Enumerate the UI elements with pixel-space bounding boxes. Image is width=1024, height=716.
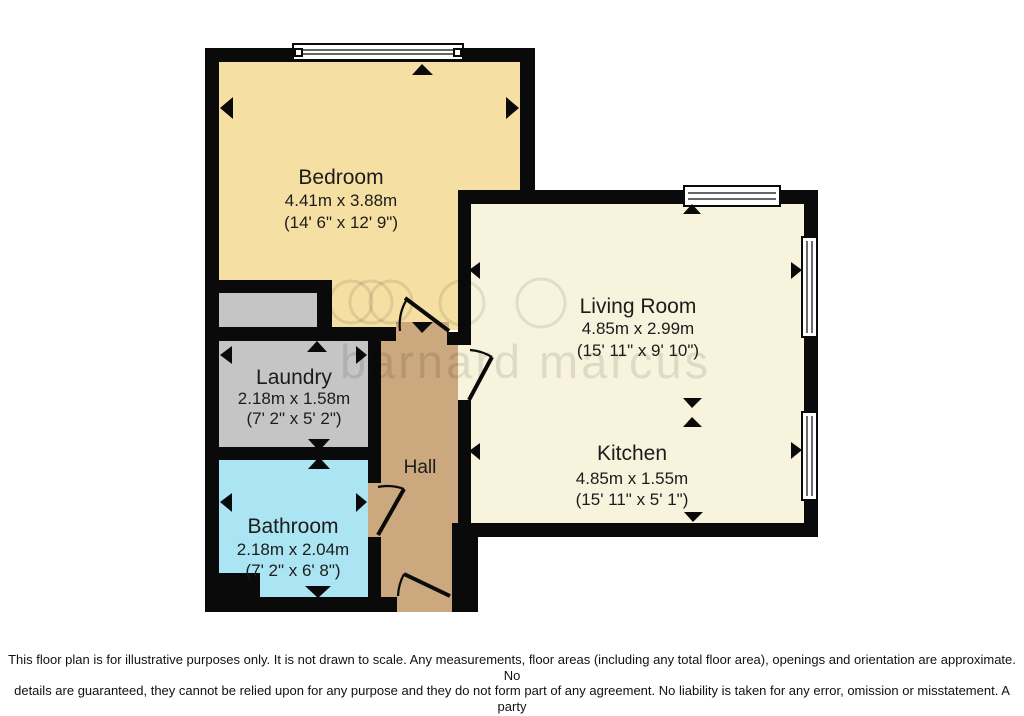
closet-space [219, 293, 317, 327]
hall-label: Hall [404, 457, 437, 478]
kitchen-metric: 4.85m x 1.55m [576, 469, 688, 488]
kitchen-label: Kitchen [597, 442, 667, 465]
livingroom-top-window [684, 186, 780, 206]
bathroom-metric: 2.18m x 2.04m [237, 540, 349, 559]
bathroom-label: Bathroom [247, 515, 338, 538]
floorplan-page: barnard marcus Bedroom 4.41m x 3.88m (14… [0, 0, 1024, 716]
bedroom-label: Bedroom [298, 166, 383, 189]
bathroom-imperial: (7' 2" x 6' 8") [245, 561, 340, 580]
bedroom-imperial: (14' 6" x 12' 9") [284, 213, 398, 232]
disclaimer-line: This floor plan is for illustrative purp… [0, 652, 1024, 683]
kitchen-imperial: (15' 11" x 5' 1") [576, 490, 689, 509]
disclaimer: This floor plan is for illustrative purp… [0, 652, 1024, 716]
bedroom-window [293, 44, 463, 60]
bedroom-metric: 4.41m x 3.88m [285, 191, 397, 210]
disclaimer-line: details are guaranteed, they cannot be r… [0, 683, 1024, 714]
laundry-label: Laundry [256, 366, 332, 389]
living-room-label: Living Room [580, 295, 697, 318]
living-room-metric: 4.85m x 2.99m [582, 319, 694, 338]
livingroom-right-window [802, 237, 817, 337]
laundry-imperial: (7' 2" x 5' 2") [246, 409, 341, 428]
laundry-metric: 2.18m x 1.58m [238, 389, 350, 408]
floorplan-drawing: barnard marcus Bedroom 4.41m x 3.88m (14… [0, 0, 1024, 716]
living-room-imperial: (15' 11" x 9' 10") [577, 341, 699, 360]
kitchen-right-window [802, 412, 817, 500]
bathroom-door-opening [368, 483, 381, 537]
